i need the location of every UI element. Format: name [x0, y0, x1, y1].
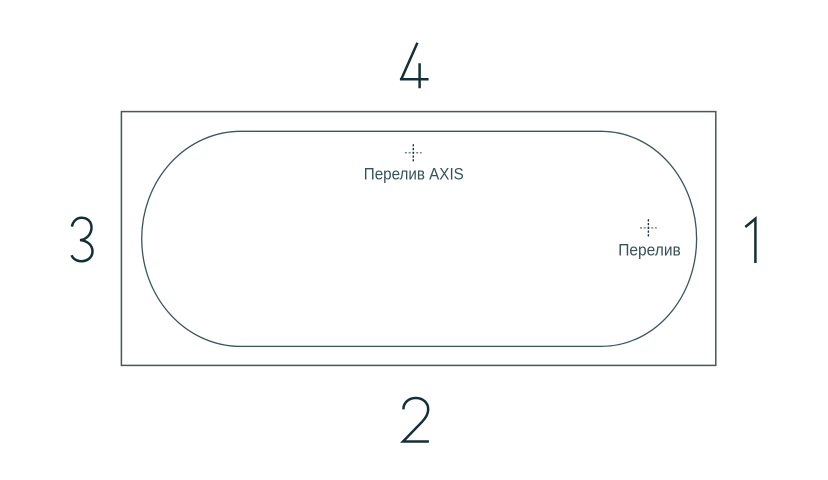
svg-text:Перелив AXIS: Перелив AXIS	[364, 164, 464, 183]
svg-text:Перелив: Перелив	[618, 240, 681, 259]
